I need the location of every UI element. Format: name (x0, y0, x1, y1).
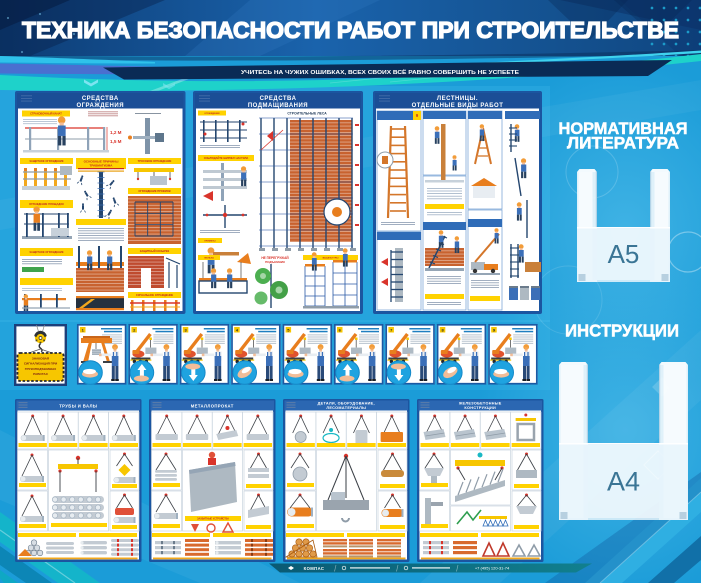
svg-text:ПОДЪЕМНИК: ПОДЪЕМНИК (265, 260, 285, 264)
svg-text:СИГНАЛИЗАЦИЯ ПРИ: СИГНАЛИЗАЦИЯ ПРИ (24, 362, 58, 366)
svg-text:+7 (495) 120-31-74: +7 (495) 120-31-74 (475, 566, 510, 571)
svg-text:ЛЕСОМАТЕРИАЛЫ: ЛЕСОМАТЕРИАЛЫ (326, 406, 366, 410)
svg-text:СТРОИТЕЛЬНЫЕ ЛЕСА: СТРОИТЕЛЬНЫЕ ЛЕСА (287, 112, 327, 116)
svg-text:A5: A5 (608, 239, 640, 269)
svg-text:ЗАЩИТНОЕ ОГРАЖДЕНИЕ: ЗАЩИТНОЕ ОГРАЖДЕНИЕ (29, 250, 63, 254)
svg-text:ЛИТЕРАТУРА: ЛИТЕРАТУРА (567, 135, 679, 153)
svg-text:ЛЕСТНИЦЫ.: ЛЕСТНИЦЫ. (437, 96, 478, 102)
svg-text:ЛЮЛЬКА: ЛЮЛЬКА (204, 256, 214, 259)
svg-text:ОТДЕЛЬНЫЕ ВИДЫ РАБОТ: ОТДЕЛЬНЫЕ ВИДЫ РАБОТ (412, 103, 504, 109)
svg-text:КОНСТРУКЦИИ: КОНСТРУКЦИИ (464, 406, 496, 410)
svg-text:ИНСТРУКЦИИ: ИНСТРУКЦИИ (565, 321, 679, 341)
svg-text:СРЕДСТВА: СРЕДСТВА (260, 96, 297, 102)
svg-text:СРЕДСТВА: СРЕДСТВА (82, 96, 119, 102)
svg-text:ТРУБЫ И ВАЛЫ: ТРУБЫ И ВАЛЫ (59, 404, 97, 409)
svg-text:ЗАХВАТНЫЕ УСТРОЙСТВА: ЗАХВАТНЫЕ УСТРОЙСТВА (197, 517, 229, 520)
svg-text:1,2 М: 1,2 М (110, 130, 122, 135)
svg-text:СИГНАЛЬНОЕ ОГРАЖДЕНИЕ: СИГНАЛЬНОЕ ОГРАЖДЕНИЕ (136, 293, 174, 297)
svg-text:РАБОТАХ: РАБОТАХ (33, 372, 49, 376)
svg-text:ТРАВМАТИЗМА: ТРАВМАТИЗМА (90, 164, 114, 168)
svg-text:УЧИТЕСЬ НА ЧУЖИХ ОШИБКАХ, ВСЕХ: УЧИТЕСЬ НА ЧУЖИХ ОШИБКАХ, ВСЕХ СВОИХ ВСЁ… (241, 69, 519, 76)
svg-text:КОМПАС: КОМПАС (304, 566, 325, 571)
svg-text:ТЕХНИКА БЕЗОПАСНОСТИ РАБОТ ПРИ: ТЕХНИКА БЕЗОПАСНОСТИ РАБОТ ПРИ СТРОИТЕЛЬ… (22, 17, 679, 43)
svg-text:СТРАХОВОЧНЫЙ КАНАТ: СТРАХОВОЧНЫЙ КАНАТ (30, 111, 62, 115)
svg-text:ВЫШКИ-ТУРЫ: ВЫШКИ-ТУРЫ (323, 257, 339, 259)
svg-text:ТРОСОВОЕ ОГРАЖДЕНИЕ: ТРОСОВОЕ ОГРАЖДЕНИЕ (138, 159, 172, 163)
svg-text:ПОДМАЩИВАНИЯ: ПОДМАЩИВАНИЯ (248, 103, 308, 109)
svg-text:ЗАЩИТНОЕ ОГРАЖДЕНИЕ: ЗАЩИТНОЕ ОГРАЖДЕНИЕ (29, 159, 63, 163)
svg-text:ОГРАЖДЕНИЕ: ОГРАЖДЕНИЕ (204, 112, 220, 115)
svg-text:СОБЛЮДАЙТЕ ШИРИНУ НАСТИЛА: СОБЛЮДАЙТЕ ШИРИНУ НАСТИЛА (204, 156, 249, 160)
svg-text:ОГРАЖДЕНИЕ ПРОЕМОВ: ОГРАЖДЕНИЕ ПРОЕМОВ (138, 189, 170, 193)
svg-text:A4: A4 (607, 466, 640, 496)
svg-text:ЗАЩИТНЫЙ КОЗЫРЕК: ЗАЩИТНЫЙ КОЗЫРЕК (140, 249, 170, 253)
svg-text:ЗНАКОВАЯ: ЗНАКОВАЯ (32, 357, 50, 361)
svg-text:ГРУЗОПОДЪЕМНЫХ: ГРУЗОПОДЪЕМНЫХ (25, 367, 57, 371)
svg-text:1,5 М: 1,5 М (110, 139, 122, 144)
svg-text:ОГРАЖДЕНИЕ ПЛОЩАДОК: ОГРАЖДЕНИЕ ПЛОЩАДОК (29, 202, 64, 206)
svg-text:ОГРАЖДЕНИЯ: ОГРАЖДЕНИЯ (76, 103, 124, 109)
svg-text:ПРИМЕТЫ: ПРИМЕТЫ (204, 240, 215, 242)
svg-text:МЕТАЛЛОПРОКАТ: МЕТАЛЛОПРОКАТ (191, 404, 234, 409)
